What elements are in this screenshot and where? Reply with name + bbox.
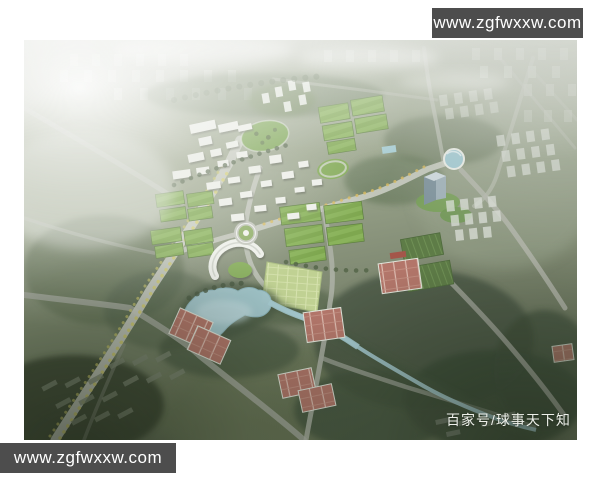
aerial-rendering-drawing	[24, 40, 577, 440]
byline-credit: 百家号/球事天下知	[446, 410, 576, 430]
watermark-bar-bottom-left: www.zgfwxxw.com	[0, 443, 176, 473]
page: { "page": { "background_color": "#ffffff…	[0, 0, 600, 480]
watermark-text-bottom-left: www.zgfwxxw.com	[14, 448, 162, 468]
watermark-text-top-right: www.zgfwxxw.com	[433, 13, 581, 33]
vignette	[24, 40, 577, 440]
aerial-rendering-image	[24, 40, 577, 440]
watermark-bar-top-right: www.zgfwxxw.com	[432, 8, 583, 38]
